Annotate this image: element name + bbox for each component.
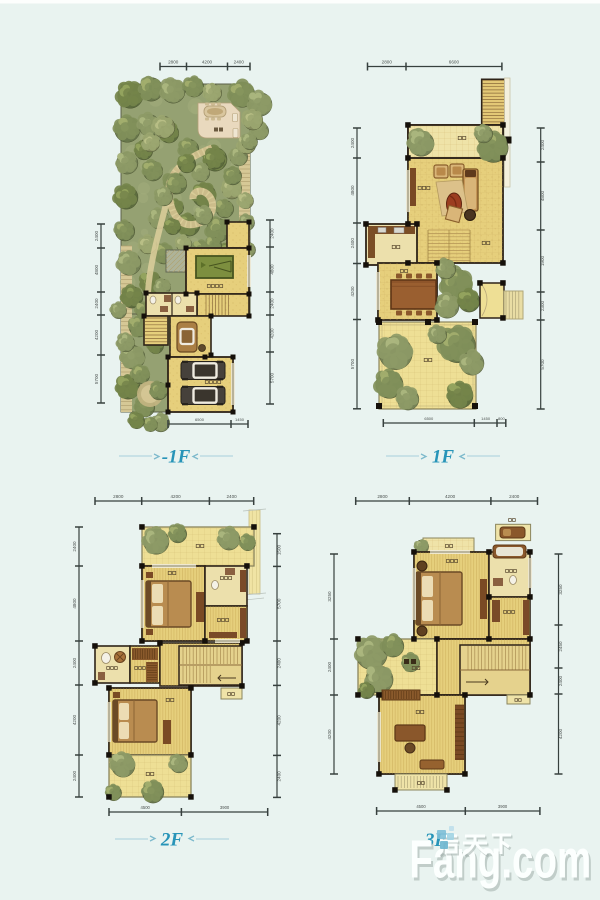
- svg-text:2400: 2400: [277, 658, 282, 669]
- svg-text:2400: 2400: [234, 60, 245, 65]
- svg-text:2F: 2F: [160, 830, 184, 851]
- svg-text:2800: 2800: [113, 494, 124, 499]
- svg-text:2400: 2400: [270, 298, 275, 309]
- svg-text:5700: 5700: [540, 359, 545, 370]
- svg-text:2400: 2400: [350, 137, 355, 148]
- svg-text:6500: 6500: [195, 417, 205, 422]
- svg-text:6600: 6600: [449, 60, 460, 65]
- svg-text:4200: 4200: [277, 715, 282, 726]
- svg-text:2400: 2400: [509, 494, 520, 499]
- svg-text:2400: 2400: [350, 238, 355, 249]
- svg-text:2400: 2400: [540, 139, 545, 150]
- svg-text:4200: 4200: [72, 714, 77, 725]
- svg-text:5700: 5700: [350, 359, 355, 370]
- svg-text:4200: 4200: [94, 329, 99, 340]
- svg-text:5700: 5700: [277, 598, 282, 609]
- svg-text:2800: 2800: [382, 60, 393, 65]
- svg-text:1450: 1450: [481, 416, 491, 421]
- svg-text:3250: 3250: [558, 584, 563, 595]
- svg-text:2800: 2800: [377, 494, 388, 499]
- svg-text:3250: 3250: [327, 591, 332, 602]
- svg-text:2400: 2400: [72, 657, 77, 668]
- svg-text:4200: 4200: [327, 729, 332, 740]
- svg-text:5700: 5700: [94, 373, 99, 384]
- svg-text:4500: 4500: [141, 805, 151, 810]
- svg-text:4200: 4200: [445, 494, 456, 499]
- svg-text:-1F: -1F: [162, 447, 191, 468]
- svg-text:4800: 4800: [94, 264, 99, 275]
- svg-text:1F: 1F: [432, 447, 455, 468]
- svg-text:4800: 4800: [540, 190, 545, 201]
- svg-text:800: 800: [498, 416, 505, 421]
- svg-text:1450: 1450: [235, 417, 245, 422]
- svg-text:2400: 2400: [94, 298, 99, 309]
- svg-text:4800: 4800: [270, 264, 275, 275]
- svg-text:2400: 2400: [327, 661, 332, 672]
- svg-text:2400: 2400: [94, 230, 99, 241]
- svg-text:1500: 1500: [277, 544, 282, 555]
- svg-text:6500: 6500: [424, 416, 434, 421]
- svg-text:2400: 2400: [558, 675, 563, 686]
- svg-text:2400: 2400: [277, 771, 282, 782]
- svg-text:2300: 2300: [540, 300, 545, 311]
- svg-text:4200: 4200: [558, 728, 563, 739]
- svg-text:2400: 2400: [72, 541, 77, 552]
- svg-text:4200: 4200: [170, 494, 181, 499]
- svg-text:2800: 2800: [168, 60, 179, 65]
- svg-text:2450: 2450: [558, 641, 563, 652]
- svg-text:2400: 2400: [270, 228, 275, 239]
- svg-text:4500: 4500: [416, 804, 426, 809]
- svg-text:1900: 1900: [540, 255, 545, 266]
- svg-text:2400: 2400: [72, 770, 77, 781]
- svg-text:4200: 4200: [202, 60, 213, 65]
- svg-text:4800: 4800: [72, 598, 77, 609]
- svg-text:4200: 4200: [270, 328, 275, 339]
- svg-text:4200: 4200: [350, 286, 355, 297]
- svg-text:4800: 4800: [350, 185, 355, 196]
- svg-text:2400: 2400: [226, 494, 237, 499]
- svg-text:3900: 3900: [220, 805, 230, 810]
- svg-text:5700: 5700: [270, 372, 275, 383]
- svg-text:3900: 3900: [498, 804, 508, 809]
